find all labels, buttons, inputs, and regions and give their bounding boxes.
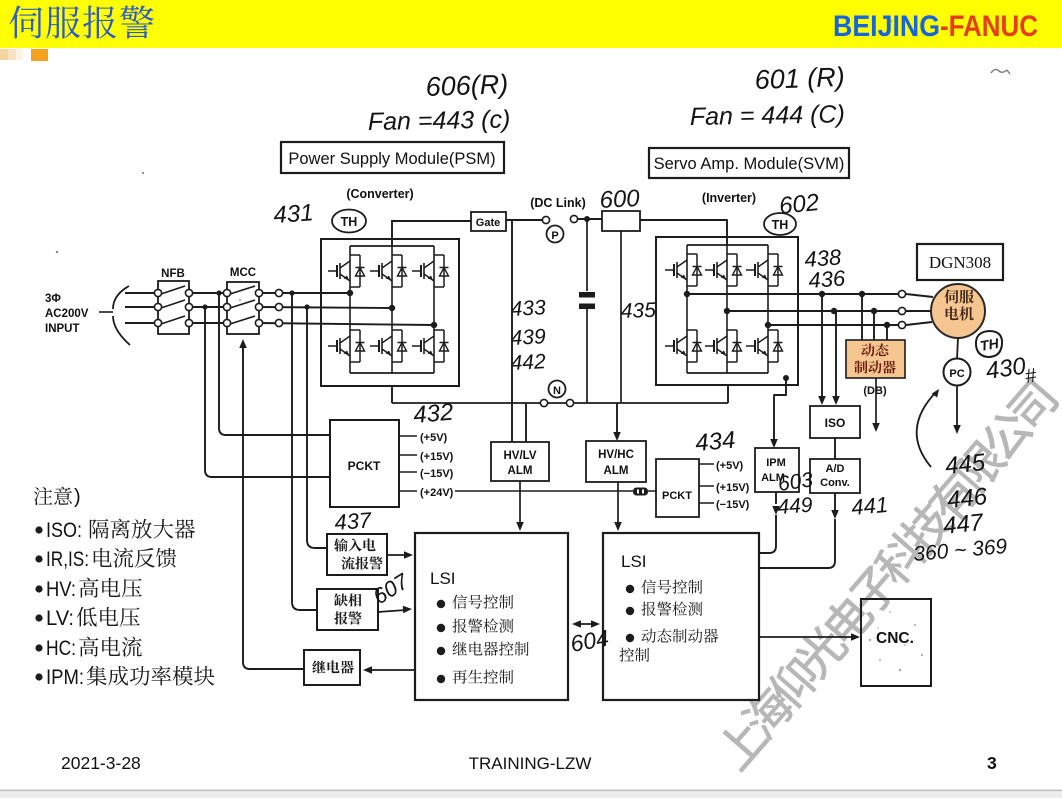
svg-text:(+5V): (+5V) [716, 460, 744, 472]
svg-text:434: 434 [694, 427, 736, 457]
svg-text:Power Supply Module(PSM): Power Supply Module(PSM) [288, 150, 495, 168]
svg-text:441: 441 [850, 492, 889, 520]
svg-text:LV:: LV: [46, 606, 74, 630]
svg-text:600: 600 [599, 185, 641, 214]
svg-text:436: 436 [808, 265, 847, 293]
svg-text:Servo Amp. Module(SVM): Servo Amp. Module(SVM) [654, 155, 845, 173]
svg-text:AC200V: AC200V [45, 308, 89, 320]
svg-text:ISO:: ISO: [46, 518, 82, 542]
svg-text:442: 442 [510, 350, 547, 375]
svg-text:449: 449 [777, 494, 814, 519]
svg-text:IR,IS:: IR,IS: [46, 547, 89, 571]
svg-text:HC:: HC: [46, 636, 76, 660]
svg-text:A/D: A/D [826, 463, 845, 475]
svg-text:603: 603 [776, 468, 814, 496]
svg-text:432: 432 [412, 399, 454, 429]
svg-text:TRAINING-LZW: TRAINING-LZW [469, 754, 592, 773]
svg-text:433: 433 [510, 296, 547, 321]
svg-text:HV/LV: HV/LV [503, 450, 536, 462]
svg-text:#: # [1024, 364, 1039, 387]
svg-text:ALM: ALM [604, 465, 629, 477]
svg-text:Fan =443 (c): Fan =443 (c) [368, 106, 511, 136]
svg-text:3: 3 [987, 753, 997, 773]
svg-text:LSI: LSI [430, 569, 456, 588]
svg-text:3Φ: 3Φ [45, 293, 61, 305]
svg-text:PCKT: PCKT [662, 490, 692, 502]
svg-text:606(R): 606(R) [425, 69, 509, 102]
svg-text:(+5V): (+5V) [420, 432, 448, 444]
svg-text:Fan = 444 (C): Fan = 444 (C) [690, 100, 845, 131]
svg-text:445: 445 [944, 449, 987, 480]
svg-text:604: 604 [568, 625, 610, 657]
svg-text:BEIJING: BEIJING [833, 10, 940, 43]
svg-text:NFB: NFB [161, 268, 185, 280]
svg-text:601 (R): 601 (R) [754, 62, 845, 95]
svg-text:CNC.: CNC. [876, 630, 914, 647]
svg-text:360 ~ 369: 360 ~ 369 [912, 535, 1008, 566]
svg-text:(−15V): (−15V) [420, 468, 454, 480]
svg-text:(+15V): (+15V) [716, 482, 750, 494]
svg-text:447: 447 [942, 509, 986, 540]
svg-text:435: 435 [620, 299, 656, 323]
svg-text:(Converter): (Converter) [346, 187, 413, 201]
svg-text:ISO: ISO [825, 416, 846, 430]
svg-text:2021-3-28: 2021-3-28 [61, 753, 141, 773]
svg-text:Gate: Gate [476, 217, 500, 229]
svg-text:(+24V): (+24V) [420, 487, 454, 499]
svg-text:PCKT: PCKT [348, 459, 381, 473]
svg-text:): ) [74, 486, 81, 508]
svg-text:Conv.: Conv. [820, 477, 850, 489]
svg-text:439: 439 [510, 325, 547, 350]
svg-text:HV/HC: HV/HC [598, 449, 634, 461]
svg-text:P: P [551, 230, 558, 242]
svg-text:446: 446 [946, 483, 989, 514]
svg-text:INPUT: INPUT [45, 323, 80, 335]
svg-text:431: 431 [273, 199, 315, 229]
svg-text:HV:: HV: [46, 577, 76, 601]
svg-text:MCC: MCC [230, 267, 256, 279]
svg-text:430: 430 [984, 353, 1028, 385]
svg-text:TH: TH [341, 215, 358, 229]
svg-text:N: N [553, 385, 561, 397]
svg-text:DGN308: DGN308 [929, 253, 991, 272]
svg-text:602: 602 [778, 189, 821, 220]
svg-text:TH: TH [979, 335, 1001, 354]
svg-text:IPM: IPM [766, 457, 786, 469]
svg-text:PC: PC [949, 368, 964, 380]
svg-text:(DC Link): (DC Link) [530, 196, 586, 210]
svg-text:(Inverter): (Inverter) [702, 191, 756, 205]
svg-text:-FANUC: -FANUC [940, 10, 1038, 43]
svg-text:TH: TH [772, 218, 789, 232]
svg-text:(+15V): (+15V) [420, 451, 454, 463]
svg-text:437: 437 [334, 507, 373, 535]
svg-text:(−15V): (−15V) [716, 499, 750, 511]
svg-text:IPM:: IPM: [46, 665, 84, 689]
svg-text:ALM: ALM [508, 465, 533, 477]
svg-text:LSI: LSI [621, 552, 647, 571]
